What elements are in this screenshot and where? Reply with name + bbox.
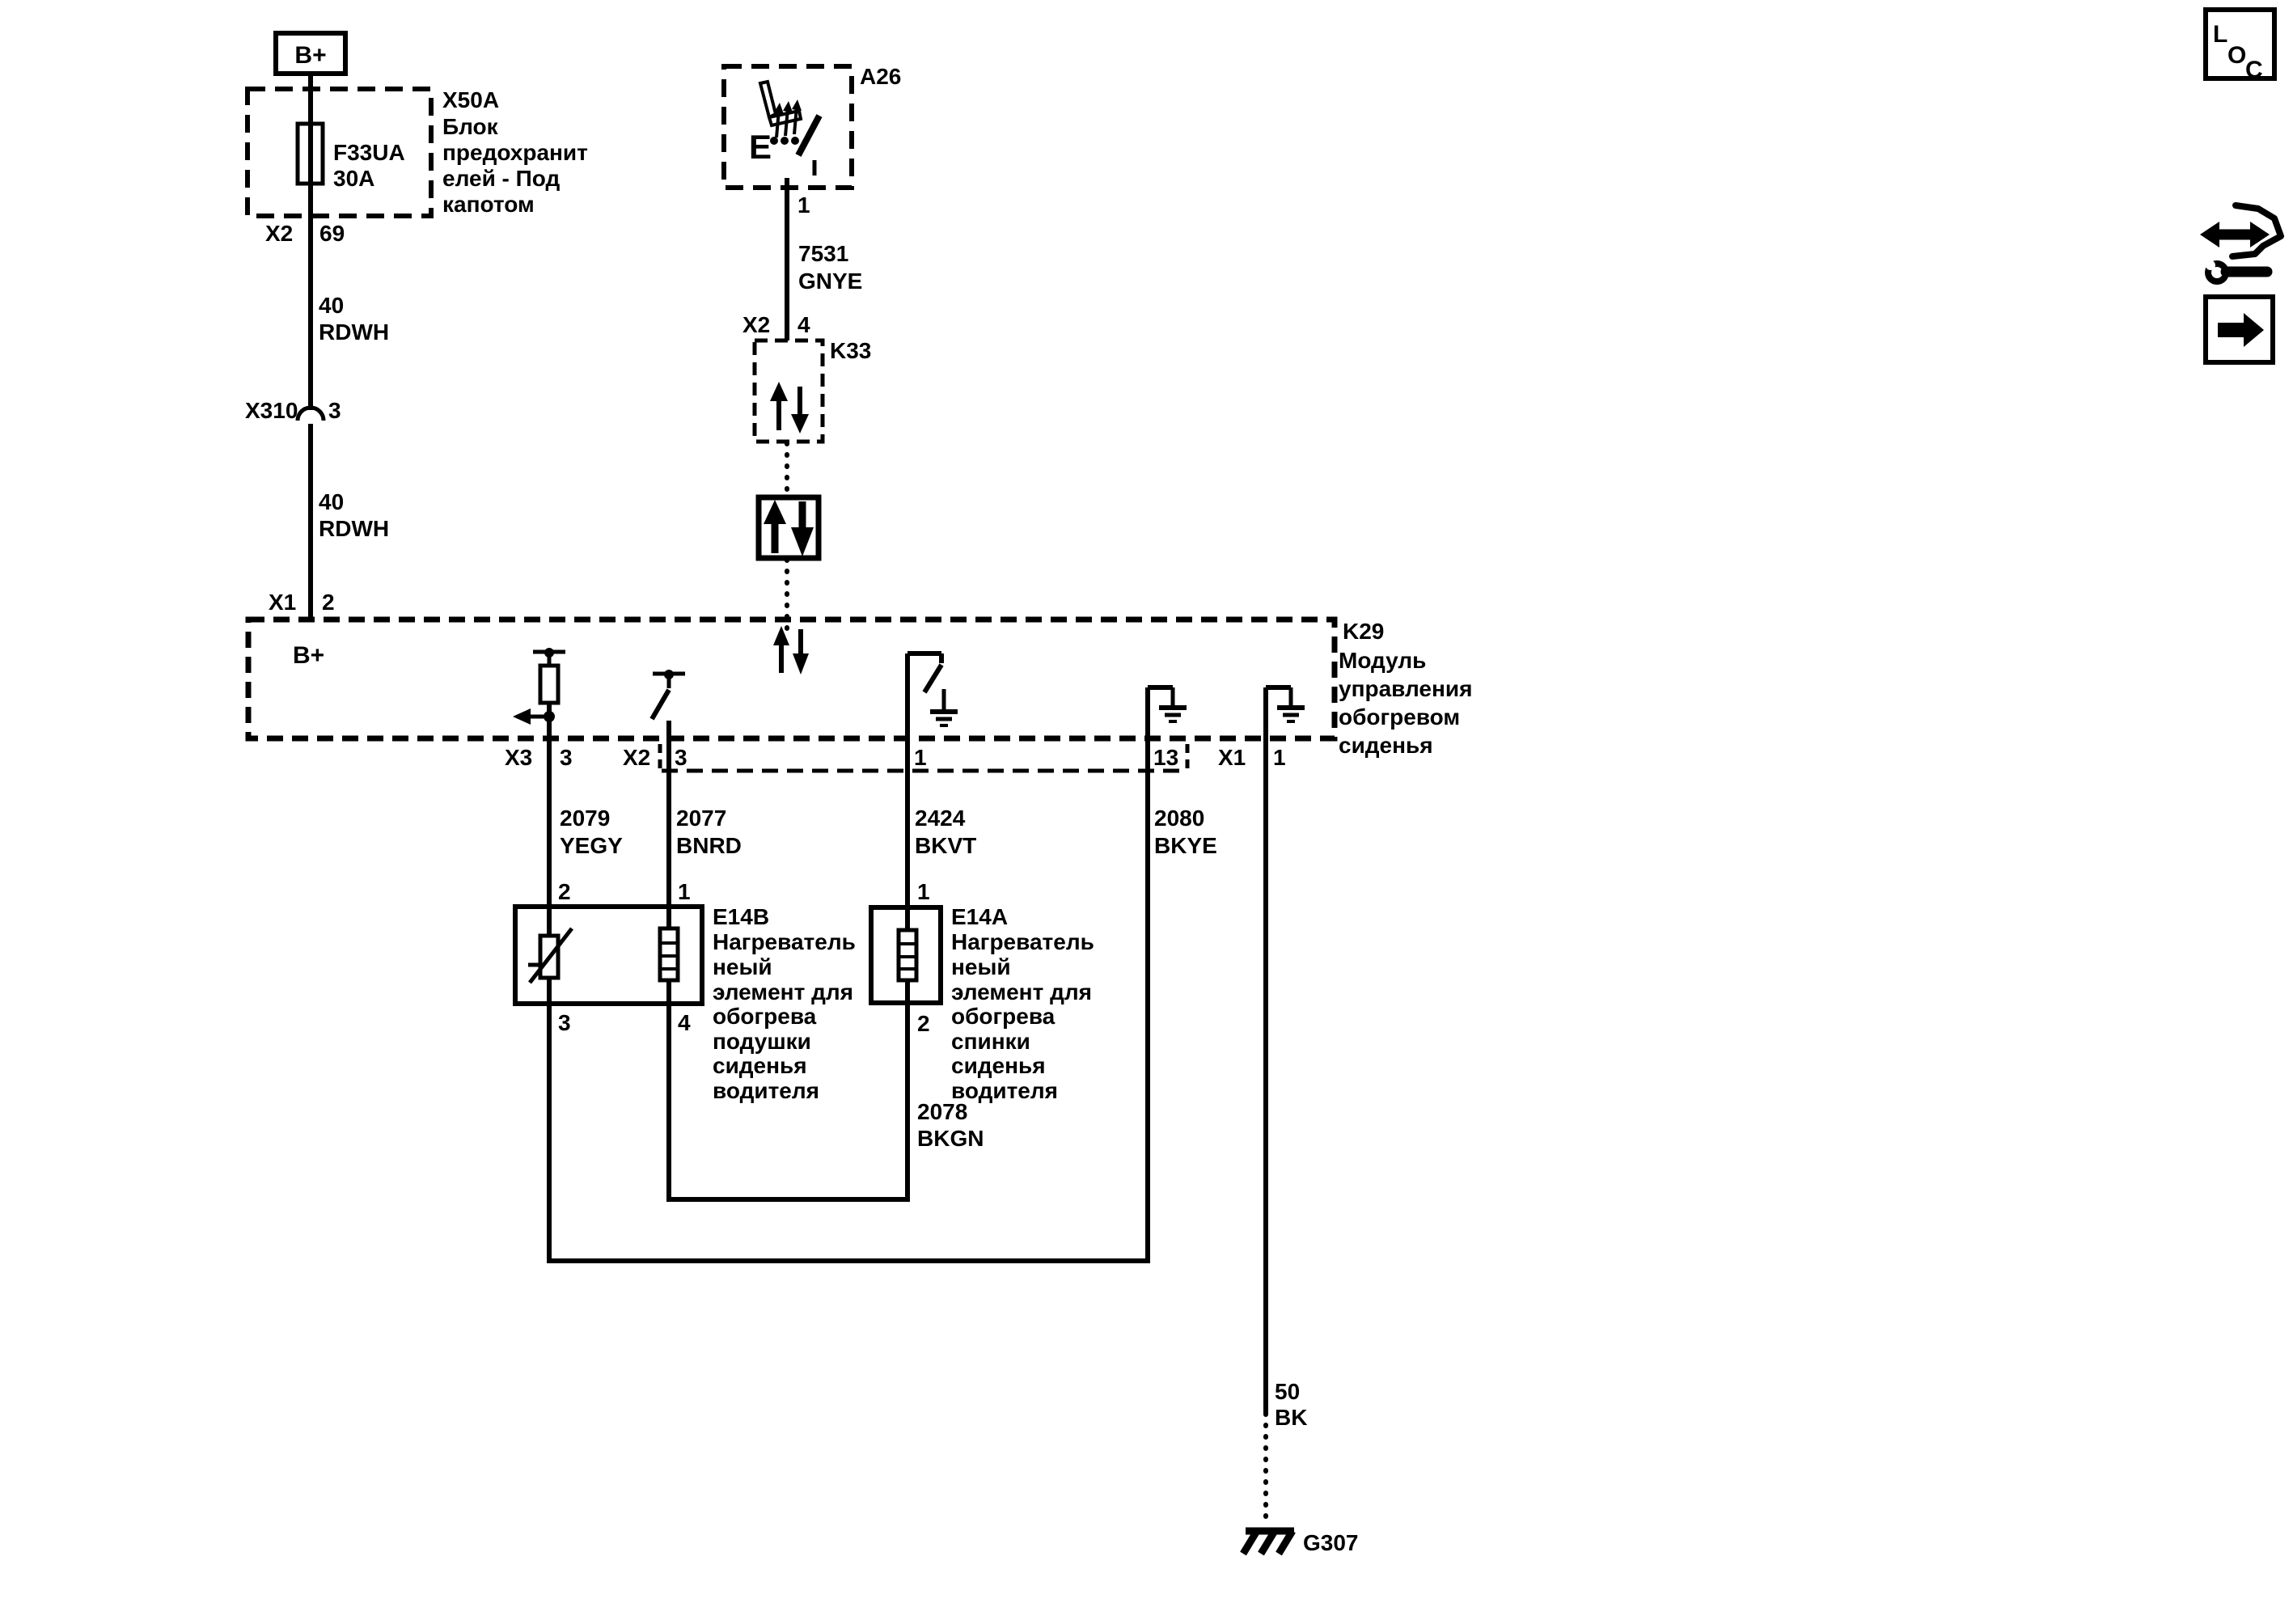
e14a-name-line7: водителя	[951, 1078, 1058, 1103]
e14b-id: E14B	[713, 904, 769, 929]
e14a-id: E14A	[951, 904, 1008, 929]
k29-x2-pin-13: 13	[1153, 745, 1178, 770]
k29-x3-pin: 3	[560, 745, 573, 770]
left-arrow-icon	[513, 708, 531, 725]
fuse-id-label: F33UA	[333, 140, 405, 165]
heated-seat-switch-branch: A26 E 1 7531 GNYE X2 4 K33	[724, 64, 901, 675]
fuse-rating-label: 30A	[333, 166, 374, 191]
e14b-name-line3: элемент для	[713, 979, 853, 1004]
k33-pin: 4	[797, 312, 810, 337]
loc-letter-o: O	[2227, 42, 2246, 69]
k29-id: K29	[1343, 619, 1384, 644]
e14b-heater: 2 1 3 4 E14B Нагреватель неый элемент дл…	[515, 879, 856, 1103]
k29-name-line4: сиденья	[1339, 733, 1433, 758]
e14a-name-line4: обогрева	[951, 1004, 1056, 1029]
wire-2424-color: BKVT	[915, 833, 976, 858]
e14b-pin-3: 3	[558, 1010, 571, 1035]
wire-40-lower-circuit: 40	[319, 489, 344, 514]
e14b-name-line4: обогрева	[713, 1004, 817, 1029]
k29-switch-to-ground	[907, 653, 958, 749]
e14a-name-line3: элемент для	[951, 979, 1092, 1004]
e14b-pin-1: 1	[678, 879, 691, 904]
wire-2424-circuit: 2424	[915, 806, 966, 831]
wire-2080-circuit: 2080	[1154, 806, 1204, 831]
right-arrow-icon	[2218, 313, 2264, 347]
e14b-name-line6: сиденья	[713, 1053, 807, 1078]
e14b-name-line7: водителя	[713, 1078, 819, 1103]
switch-pin: 1	[797, 192, 810, 218]
switch-dot-icon	[781, 137, 789, 145]
switch-dot-icon	[791, 137, 799, 145]
inline-connector-id: X310	[245, 398, 298, 423]
diagnostic-tools-icon[interactable]	[2200, 205, 2281, 281]
wire-2079-color: YEGY	[560, 833, 623, 858]
forward-arrow-button[interactable]	[2206, 297, 2273, 362]
fuse-block-name-line3: елей - Под	[442, 166, 561, 191]
k29-x3-label: X3	[505, 745, 532, 770]
e14a-pin-1: 1	[917, 879, 930, 904]
k29-in-connector: X1	[269, 590, 296, 615]
switch-assembly-box	[724, 66, 852, 188]
wire-2080-color: BKYE	[1154, 833, 1217, 858]
k29-x2-pin-1: 1	[914, 745, 927, 770]
wiring-diagram: B+ F33UA 30A X50A Блок предохранит елей …	[0, 0, 2293, 1624]
k33-id: K33	[830, 338, 871, 363]
heating-element-symbol	[899, 907, 916, 1003]
k29-in-pin: 2	[322, 590, 335, 615]
e14a-pin-2: 2	[917, 1011, 930, 1036]
wire-40-lower-color: RDWH	[319, 516, 389, 541]
serial-data-arrows-icon	[770, 382, 809, 433]
e14a-heater: 1 2 E14A Нагреватель неый элемент для об…	[871, 879, 1094, 1103]
wire-50-circuit: 50	[1275, 1379, 1300, 1404]
switch-contact-letter: E	[749, 128, 772, 166]
chassis-ground-icon	[1243, 1531, 1294, 1554]
wire-2078-color: BKGN	[917, 1126, 984, 1151]
e14a-name-line5: спинки	[951, 1029, 1030, 1054]
wire-2077-circuit: 2077	[676, 806, 726, 831]
switch-assembly-id: A26	[860, 64, 901, 89]
serial-data-arrows-icon	[764, 500, 814, 556]
switch-blade	[798, 116, 819, 155]
k29-x2-pin-3: 3	[675, 745, 687, 770]
fuse-out-pin: 69	[319, 221, 345, 246]
e14b-pin-4: 4	[678, 1010, 691, 1035]
e14b-name-line2: неый	[713, 954, 772, 979]
k29-name-line3: обогревом	[1339, 704, 1460, 730]
wire-50-color: BK	[1275, 1405, 1307, 1430]
fuse-out-connector: X2	[265, 221, 293, 246]
e14b-name-line1: Нагреватель	[713, 929, 856, 954]
e14a-name-line1: Нагреватель	[951, 929, 1094, 954]
corner-icons: L O C	[2200, 10, 2281, 362]
k29-b-plus-label: B+	[293, 642, 324, 669]
battery-feed-label: B+	[294, 42, 326, 69]
fuse-block-id: X50A	[442, 87, 499, 112]
serial-data-arrows-icon	[773, 626, 809, 675]
inline-connector-pin: 3	[328, 398, 341, 423]
inline-connector-symbol	[298, 408, 324, 421]
wire-7531-color: GNYE	[798, 269, 862, 294]
k29-x2-label: X2	[623, 745, 650, 770]
output-wires: 2079 YEGY 2077 BNRD 2424 BKVT 2080 BKYE …	[549, 749, 1359, 1555]
wire-40-upper-circuit: 40	[319, 293, 344, 318]
loc-button[interactable]: L O C	[2206, 10, 2274, 83]
wiring-diagram-page: B+ F33UA 30A X50A Блок предохранит елей …	[0, 0, 2293, 1624]
k29-x1-pin: 1	[1273, 745, 1286, 770]
k29-module: K29 Модуль управления обогревом сиденья …	[248, 619, 1472, 771]
k33-connector: X2	[742, 312, 770, 337]
wire-2079-circuit: 2079	[560, 806, 610, 831]
k29-name-line1: Модуль	[1339, 648, 1426, 673]
fuse-block-name-line4: капотом	[442, 192, 535, 217]
k29-name-line2: управления	[1339, 676, 1472, 701]
wire-40-upper-color: RDWH	[319, 319, 389, 345]
e14a-name-line2: неый	[951, 954, 1011, 979]
k29-sensor-resistor	[513, 648, 565, 749]
e14a-name-line6: сиденья	[951, 1053, 1046, 1078]
k33-box	[755, 340, 823, 442]
fuse-block-name-line1: Блок	[442, 114, 499, 139]
loc-letter-l: L	[2213, 21, 2227, 48]
e14b-name-line5: подушки	[713, 1029, 811, 1054]
e14b-pin-2: 2	[558, 879, 571, 904]
power-feed-branch: B+ F33UA 30A X50A Блок предохранит елей …	[245, 33, 588, 620]
wire-2077-color: BNRD	[676, 833, 742, 858]
heating-element-symbol	[660, 907, 678, 1004]
loc-letter-c: C	[2245, 57, 2263, 83]
k29-x1-label: X1	[1218, 745, 1246, 770]
wire-7531-circuit: 7531	[798, 241, 848, 266]
thermistor-symbol	[528, 907, 572, 1004]
switch-dot-icon	[770, 137, 778, 145]
ground-id: G307	[1303, 1530, 1359, 1555]
fuse-block-name-line2: предохранит	[442, 140, 588, 165]
